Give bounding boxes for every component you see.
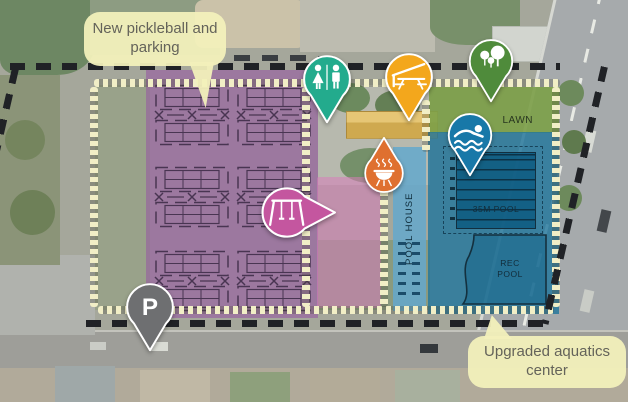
- rec-pool-label: REC POOL: [488, 258, 532, 280]
- trees-pin: [466, 38, 516, 103]
- house-4: [395, 370, 460, 402]
- aerial-interior-field: [95, 85, 150, 310]
- parking-pin: P: [123, 282, 177, 352]
- boundary-left: [0, 68, 19, 315]
- car-bottom-3: [90, 342, 106, 350]
- tree-roadside-1: [558, 80, 584, 106]
- house-3: [310, 368, 380, 402]
- tree-left-1: [5, 120, 45, 160]
- site-plan-map: LAWN POOL HOUSE 35M POOL REC POOL: [0, 0, 628, 402]
- bbq-pin: [363, 136, 405, 194]
- pickleball-callout-text: New pickleball and parking: [84, 20, 226, 58]
- car-top-2: [262, 55, 278, 61]
- picnic-shelter-pin: [382, 52, 436, 122]
- car-right-3: [580, 289, 595, 313]
- aerial-parking-bottomleft: [0, 255, 95, 335]
- pickleball-court-block: [154, 166, 230, 228]
- path-left: [90, 87, 98, 307]
- car-top-1: [234, 55, 250, 61]
- car-bottom-2: [420, 344, 438, 353]
- swimming-pin: [445, 112, 495, 177]
- aerial-gray-top: [300, 0, 435, 52]
- path-inner-playground: [380, 182, 388, 307]
- pool-house-loungers-1: [398, 242, 406, 302]
- lawn-label: LAWN: [502, 115, 533, 126]
- aquatics-callout: Upgraded aquatics center: [468, 336, 626, 388]
- pickleball-court-block: [236, 250, 312, 312]
- house-2: [140, 370, 210, 402]
- playground-pin: [260, 186, 338, 239]
- yard-1: [230, 372, 290, 402]
- pickleball-callout: New pickleball and parking: [84, 12, 226, 66]
- parking-letter: P: [142, 294, 158, 321]
- pool-house-loungers-2: [412, 242, 420, 302]
- pickleball-court-block: [154, 84, 230, 146]
- restroom-pin: [300, 54, 354, 124]
- car-right-2: [597, 209, 612, 233]
- pool-35m-label: 35M POOL: [457, 204, 535, 214]
- tree-left-2: [10, 190, 55, 235]
- house-1: [55, 366, 115, 402]
- aquatics-callout-text: Upgraded aquatics center: [468, 343, 626, 381]
